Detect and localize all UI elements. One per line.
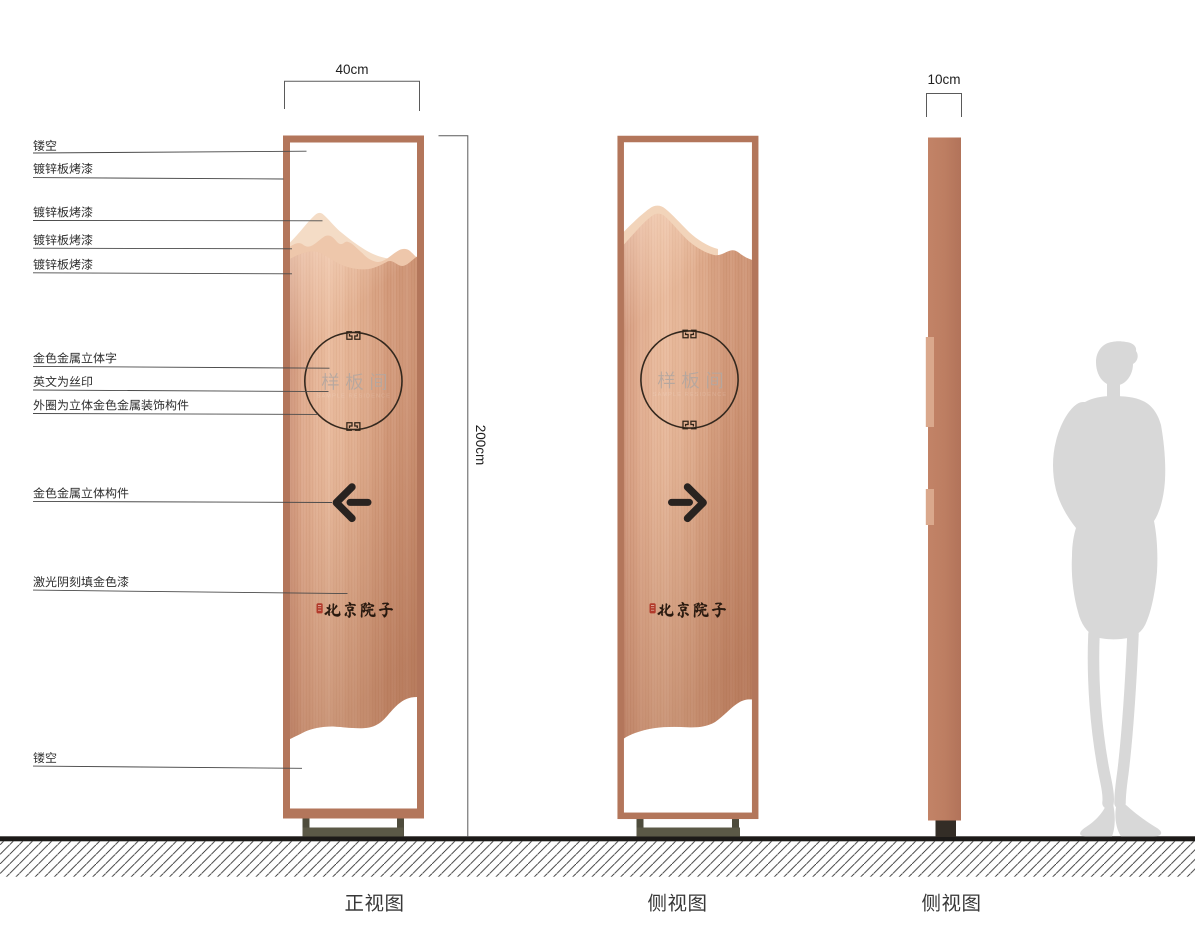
- svg-text:10cm: 10cm: [927, 72, 960, 87]
- svg-text:40cm: 40cm: [335, 62, 368, 77]
- svg-text:200cm: 200cm: [473, 425, 488, 466]
